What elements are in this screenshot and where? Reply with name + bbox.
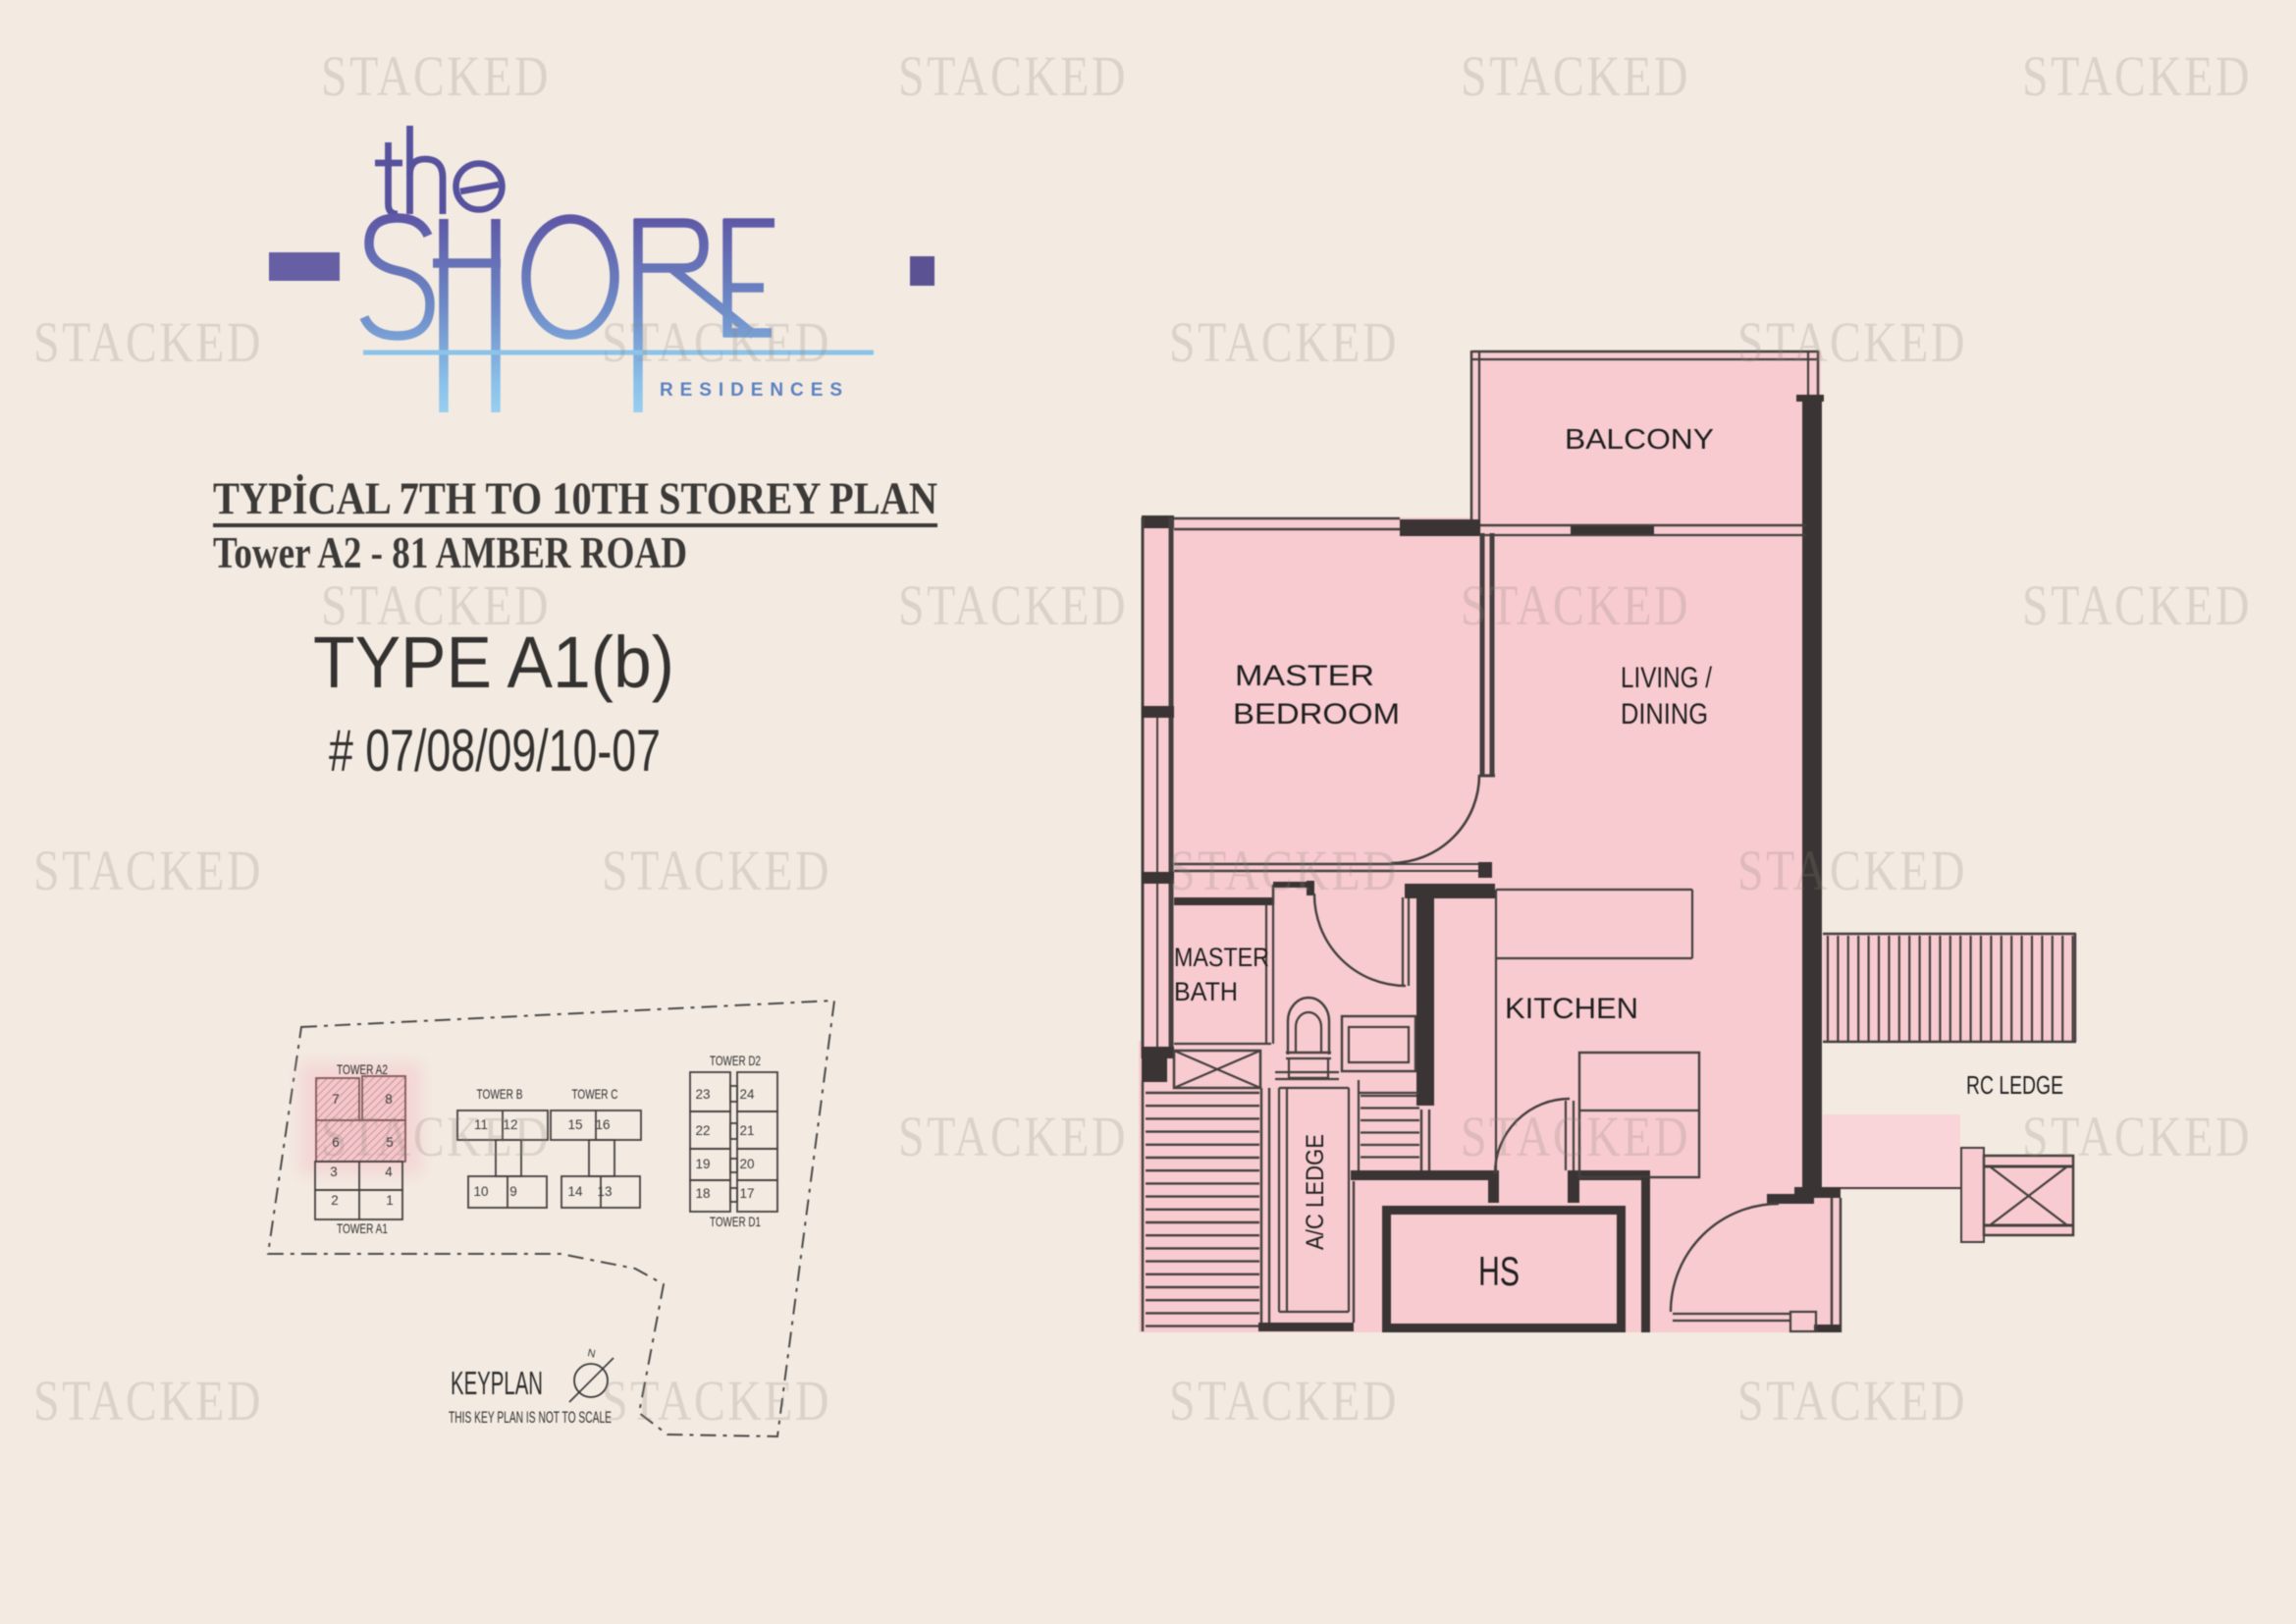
svg-text:TOWER B: TOWER B [477,1086,523,1102]
svg-text:10: 10 [473,1184,488,1199]
svg-text:BALCONY: BALCONY [1565,424,1714,456]
svg-text:TOWER A2: TOWER A2 [337,1061,388,1077]
svg-text:MASTER: MASTER [1235,660,1374,692]
svg-text:TYPİCAL 7TH TO 10TH STOREY PLA: TYPİCAL 7TH TO 10TH STOREY PLAN [213,473,937,524]
svg-text:HS: HS [1478,1248,1520,1294]
svg-text:TOWER A1: TOWER A1 [337,1220,388,1236]
svg-text:# 07/08/09/10-07: # 07/08/09/10-07 [329,718,661,784]
svg-text:STACKED: STACKED [898,573,1128,637]
svg-text:BEDROOM: BEDROOM [1233,698,1400,731]
svg-text:DINING: DINING [1621,698,1708,731]
svg-text:STACKED: STACKED [602,1369,831,1433]
svg-text:18: 18 [695,1186,710,1201]
svg-text:STACKED: STACKED [1169,839,1399,902]
svg-text:STACKED: STACKED [1737,310,1967,374]
svg-text:22: 22 [695,1123,710,1138]
svg-text:1: 1 [386,1193,394,1208]
svg-text:14: 14 [567,1184,583,1199]
svg-text:STACKED: STACKED [2022,573,2252,637]
svg-text:STACKED: STACKED [33,839,263,902]
svg-text:16: 16 [595,1117,610,1132]
svg-text:RC LEDGE: RC LEDGE [1966,1070,2063,1100]
svg-text:TOWER D2: TOWER D2 [710,1053,761,1068]
svg-text:STACKED: STACKED [1169,310,1399,374]
svg-text:LIVING /: LIVING / [1621,662,1713,694]
svg-text:STACKED: STACKED [321,44,551,108]
svg-text:STACKED: STACKED [33,1369,263,1433]
svg-text:KITCHEN: KITCHEN [1505,993,1638,1025]
svg-text:STACKED: STACKED [2022,44,2252,108]
svg-text:TOWER D1: TOWER D1 [710,1214,761,1229]
svg-text:TOWER C: TOWER C [572,1086,618,1102]
svg-text:RESIDENCES: RESIDENCES [660,380,842,401]
svg-text:STACKED: STACKED [898,44,1128,108]
svg-text:KEYPLAN: KEYPLAN [451,1365,543,1401]
svg-text:2: 2 [331,1193,339,1208]
svg-text:STACKED: STACKED [898,1105,1128,1168]
svg-text:STACKED: STACKED [33,310,263,374]
svg-text:STACKED: STACKED [321,1105,551,1168]
svg-text:20: 20 [739,1157,754,1171]
svg-text:STACKED: STACKED [321,573,551,637]
svg-text:21: 21 [739,1123,754,1138]
svg-text:17: 17 [739,1186,754,1201]
svg-text:STACKED: STACKED [1737,839,1967,902]
svg-text:BATH: BATH [1174,977,1238,1006]
svg-text:STACKED: STACKED [1461,573,1690,637]
svg-text:THIS KEY PLAN IS NOT TO SCALE: THIS KEY PLAN IS NOT TO SCALE [449,1408,612,1427]
svg-text:STACKED: STACKED [1461,1105,1690,1168]
svg-text:STACKED: STACKED [2022,1105,2252,1168]
svg-text:19: 19 [695,1157,710,1171]
svg-text:MASTER: MASTER [1174,943,1269,972]
svg-text:STACKED: STACKED [1169,1369,1399,1433]
svg-text:STACKED: STACKED [602,839,831,902]
svg-text:23: 23 [695,1087,710,1102]
svg-text:13: 13 [597,1184,612,1199]
svg-text:STACKED: STACKED [602,310,831,374]
svg-text:9: 9 [509,1184,517,1199]
svg-text:24: 24 [739,1087,755,1102]
svg-text:STACKED: STACKED [1737,1369,1967,1433]
svg-text:STACKED: STACKED [1461,44,1690,108]
svg-text:Tower A2 - 81 AMBER ROAD: Tower A2 - 81 AMBER ROAD [213,527,687,577]
svg-text:A/C LEDGE: A/C LEDGE [1302,1134,1329,1250]
svg-text:15: 15 [567,1117,582,1132]
